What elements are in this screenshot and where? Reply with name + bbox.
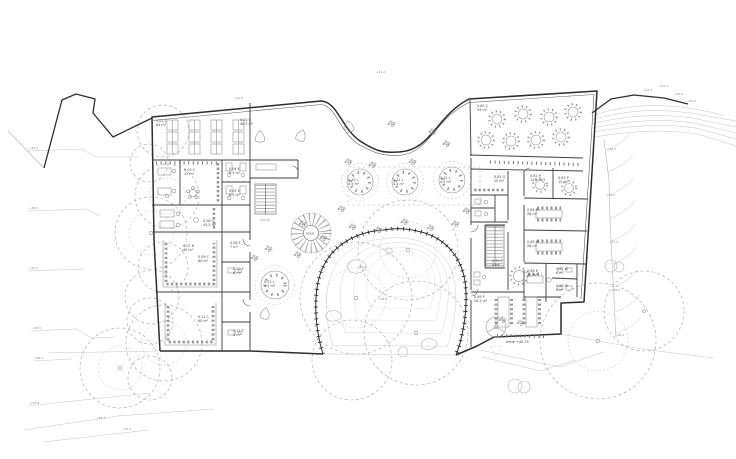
room-area: 6 m²	[556, 271, 565, 275]
room-area: 15 m²	[558, 180, 569, 184]
room-area: 15 m²	[184, 172, 195, 176]
dining-tables	[478, 104, 581, 149]
room-label: 0.05 K6.5 m²	[229, 189, 241, 197]
elevation-label: +36.5	[611, 288, 620, 292]
room-labels: 0.01 C63 m² 0.02 C48.5 m² 0.03 C15 m² 0.…	[156, 104, 569, 344]
site-labels: +39.0 +38.0 +37.0 +36.5 +36.2 +35.8 +35.…	[29, 70, 696, 431]
sand-area	[421, 339, 437, 349]
play-flower-toy	[187, 186, 200, 198]
room-label: 0.20 L4.5 m²	[348, 178, 360, 186]
contour-line	[31, 329, 115, 338]
play-feature	[386, 248, 392, 254]
tree-canopy	[125, 270, 179, 324]
spot-elevation: +41.1	[659, 84, 668, 88]
garden-contour	[367, 251, 435, 308]
tree-canopy	[312, 320, 392, 400]
room-label: 0.23 L4.5 m²	[264, 280, 276, 288]
spot-elevation: +40.6	[687, 99, 696, 103]
room-label: 0.60 C93 m²	[477, 104, 489, 112]
terrain-contours-left	[24, 149, 214, 442]
room-label: 0.68 W6 m²	[556, 284, 569, 292]
room-label: 0.65 M28 m²	[527, 240, 539, 248]
hall-stair	[255, 184, 276, 214]
tree-trunk	[406, 248, 410, 252]
room-label: 0.69 P24.5 m²	[474, 295, 488, 303]
play-triangle	[343, 120, 355, 134]
spot-elevation: +41.0	[234, 96, 243, 100]
contour-line	[611, 224, 636, 241]
spot-elevation: +38.2	[378, 297, 387, 301]
spot-elevation: +40.9	[674, 92, 683, 96]
room-area: 6 m²	[233, 333, 242, 337]
tree-inner-canopy	[326, 268, 386, 328]
room-label: 0.02 C48.5 m²	[240, 118, 254, 126]
tree-inner-canopy	[380, 222, 436, 278]
room-area: 6 m²	[233, 271, 242, 275]
room-area: 7 m²	[230, 245, 239, 249]
elevation-label: +35.8	[30, 401, 39, 405]
tree-trunk	[354, 296, 358, 300]
room-area: 43.5 m²	[203, 223, 217, 227]
fan-stair-label: scen	[306, 232, 314, 236]
facade-glass-line	[316, 229, 466, 355]
contour-line	[613, 270, 638, 287]
tree-canopy	[604, 271, 684, 351]
room-label: 0.03 C15 m²	[184, 168, 196, 176]
classroom-desks	[167, 120, 244, 154]
wall	[471, 169, 583, 171]
plant-cluster	[443, 141, 450, 147]
contour-line	[44, 430, 148, 442]
elevation-label: +39.5	[607, 147, 616, 151]
elevation-label: +38.0	[29, 206, 38, 210]
contour-line	[612, 247, 637, 264]
room-area: 60 m²	[198, 319, 209, 323]
room-label: 0.66 K20 m²	[527, 269, 539, 277]
room-area: 8 m²	[492, 263, 501, 267]
spot-elevation: +41.3	[643, 88, 652, 92]
plant-cluster	[452, 221, 459, 227]
room-area: 63 m²	[156, 123, 167, 127]
room-label: 0.06 C43.5 m²	[203, 219, 217, 227]
courtyard-garden	[323, 237, 456, 357]
plant-cluster	[388, 121, 395, 127]
elevation-label: +35.4	[96, 416, 105, 420]
elevation-label: +36.2	[34, 356, 43, 360]
wall-inner-line	[581, 95, 594, 300]
terrain-topright	[592, 95, 736, 338]
floorplan-sheet: 0.01 C63 m² 0.02 C48.5 m² 0.03 C15 m² 0.…	[0, 0, 736, 459]
elevation-label: +39.0	[29, 146, 38, 150]
room-area: 4.5 m²	[440, 180, 452, 184]
elevation-label: +37.5	[609, 240, 618, 244]
room-area: 93 m²	[477, 108, 488, 112]
wc-fixtures-right	[474, 199, 572, 290]
room-label: 0.09 C60 m²	[198, 255, 210, 263]
office-desks	[158, 168, 198, 228]
site-ground-line	[561, 334, 714, 358]
plant-cluster	[338, 206, 345, 212]
room-area: 4.5 m²	[393, 182, 405, 186]
tree-trunk	[118, 366, 121, 369]
building-outline	[152, 91, 597, 355]
elevation-label: +36.5	[32, 326, 41, 330]
contour-line	[594, 125, 736, 139]
spot-elevation: +38.6	[357, 265, 366, 269]
room-area: 10 m²	[494, 179, 505, 183]
stairs	[255, 184, 504, 266]
plant-cluster	[349, 224, 356, 230]
room-label: 0.21 L4.5 m²	[393, 178, 405, 186]
elevation-label: +35.2	[122, 427, 131, 431]
room-area: 4.5 m²	[348, 182, 360, 186]
plant-cluster	[409, 159, 416, 165]
furniture	[156, 104, 581, 356]
ramp-line	[482, 357, 575, 371]
play-triangle	[255, 131, 264, 143]
wall-inner-line	[321, 103, 469, 156]
sand-area	[326, 311, 341, 322]
wall-inner-line	[152, 105, 321, 121]
room-label: 0.01 C63 m²	[156, 119, 168, 127]
tree-canopy	[130, 144, 168, 182]
room-area: 6.5 m²	[229, 193, 241, 197]
room-label: 0.22 L4.5 m²	[440, 176, 452, 184]
garden-contour	[340, 242, 448, 333]
room-area: 24.5 m²	[474, 299, 488, 303]
entrance-label: entré +40.35	[506, 340, 529, 344]
tree-canopy	[358, 200, 458, 300]
contour-line	[610, 201, 635, 218]
room-label: 0.67 W6 m²	[556, 267, 569, 275]
pond	[398, 347, 408, 357]
room-label: 0.61 G10 m²	[494, 175, 506, 183]
ramp-line	[480, 350, 603, 367]
play-triangle	[295, 128, 307, 142]
plant-cluster	[401, 219, 408, 225]
plant-cluster	[251, 255, 258, 261]
spot-elevation: +40.45	[259, 218, 270, 222]
plant-cluster	[427, 225, 434, 231]
plant-cluster	[294, 252, 301, 258]
floorplan-canvas: 0.01 C63 m² 0.02 C48.5 m² 0.03 C15 m² 0.…	[0, 0, 736, 459]
tree-trunk	[149, 231, 152, 234]
contour-line	[28, 393, 150, 406]
plant-cluster	[463, 208, 470, 214]
garden-contour	[354, 247, 441, 320]
tree-canopy	[126, 305, 202, 381]
curved-facade	[316, 229, 466, 355]
room-label: 0.04 K6.5 m²	[229, 167, 241, 175]
elevation-label: +38.5	[606, 193, 615, 197]
garden-edge	[323, 354, 456, 355]
elevation-label: +37.0	[29, 266, 38, 270]
cabinet	[256, 164, 276, 170]
wall	[250, 160, 298, 178]
room-area: 6.5 m²	[229, 171, 241, 175]
coat-rack	[490, 162, 581, 165]
play-triangle	[260, 307, 271, 320]
room-area: 4.5 m²	[264, 284, 276, 288]
slope-edge	[604, 140, 616, 338]
elevation-label: +36.0	[615, 333, 624, 337]
contour-line	[28, 209, 100, 216]
tree-trunk	[643, 310, 646, 313]
room-label: 0.08 F7 m²	[230, 241, 241, 249]
room-area: 12.5 m²	[530, 178, 544, 182]
contour-line	[607, 155, 633, 172]
room-area: 40 m²	[183, 248, 194, 252]
boundary-line	[8, 131, 44, 168]
room-area: 28 m²	[527, 212, 538, 216]
room-label: 0.11 C60 m²	[198, 315, 210, 323]
wall-bench	[214, 163, 218, 230]
tree-canopy	[137, 105, 189, 157]
tree-canopy	[128, 356, 172, 400]
site-ground-line	[48, 351, 158, 353]
contour-line	[28, 149, 138, 157]
room-label: 0.63 P15 m²	[558, 176, 569, 184]
building-walls	[152, 91, 597, 355]
room-area: 48.5 m²	[240, 122, 254, 126]
tree-canopy	[115, 197, 187, 269]
room-label: 0.07 B40 m²	[183, 244, 195, 252]
room-area: 28 m²	[527, 244, 538, 248]
room-area: 20 m²	[527, 273, 538, 277]
room-label: 0.62 P12.5 m²	[530, 174, 544, 182]
retaining-wall	[592, 95, 688, 113]
room-label: 0.64 M28 m²	[527, 208, 539, 216]
contour-line	[24, 409, 214, 430]
room-area: 6 m²	[556, 288, 565, 292]
plant-cluster	[345, 159, 352, 165]
spot-elevation: +41.2	[376, 70, 385, 74]
room-area: 60 m²	[198, 259, 209, 263]
plant-cluster	[265, 246, 272, 252]
